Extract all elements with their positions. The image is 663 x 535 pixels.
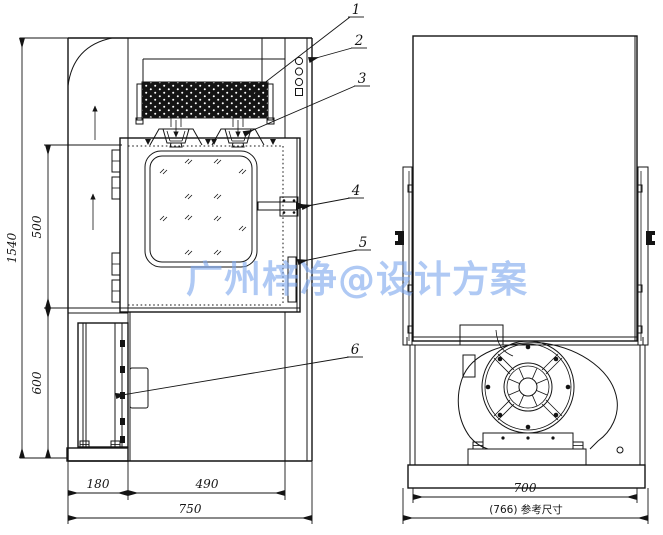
svg-text:6: 6: [351, 342, 360, 358]
airflow-duct-curve: [68, 38, 112, 86]
seal-mark: [205, 139, 211, 145]
svg-text:3: 3: [358, 71, 367, 87]
dim-label-1540: 1540: [5, 232, 19, 263]
seal-mark: [211, 139, 217, 145]
machine-compartment: [408, 325, 645, 488]
cabinet-handle[interactable]: [130, 368, 148, 408]
dim-width-row: 180 490 750: [68, 461, 312, 524]
hepa-filter: [136, 38, 285, 124]
dim-label-500: 500: [30, 215, 44, 238]
svg-text:4: 4: [351, 183, 361, 199]
dim-label-750: 750: [179, 502, 202, 516]
control-panel: [285, 38, 303, 138]
front-view: [67, 38, 312, 461]
dim-label-490: 490: [195, 477, 219, 491]
fan-flange-bolts: [486, 345, 571, 430]
callout-2: 2: [309, 33, 367, 60]
dim-label-180: 180: [87, 477, 110, 491]
cabinet-hinge-mark: [120, 418, 125, 425]
glass-marks: [160, 159, 246, 255]
technical-drawing-canvas: 1540 500 600 180 490 750: [0, 0, 663, 535]
cabinet-hinge-mark: [120, 340, 125, 347]
door-rail-left: [395, 167, 412, 345]
dim-label-700: 700: [514, 481, 537, 495]
fan-hub-spokes: [509, 368, 548, 407]
filter-bracket-right: [268, 84, 273, 120]
side-latch-knob-left[interactable]: [395, 231, 404, 245]
control-button-3[interactable]: [295, 78, 302, 85]
svg-text:1: 1: [352, 2, 361, 18]
callouts: 1 2 3 4 5 6: [116, 2, 371, 396]
control-button-2[interactable]: [295, 68, 302, 75]
pedestal: [468, 449, 586, 465]
door-rail-right: [638, 167, 655, 345]
dim-label-766-ref: (766) 参考尺寸: [489, 503, 563, 516]
lower-section: [67, 312, 300, 461]
dim-label-600: 600: [30, 371, 44, 394]
cad-drawing: 1540 500 600 180 490 750: [0, 0, 663, 535]
fan-flange: [482, 341, 574, 433]
callout-6: 6: [116, 342, 363, 396]
control-switch[interactable]: [296, 89, 303, 96]
plinth: [67, 448, 128, 461]
diffuser-funnel-left: [150, 118, 202, 147]
seal-mark: [270, 139, 276, 145]
svg-text:2: 2: [354, 33, 364, 49]
fan-hub: [504, 363, 552, 411]
fan-mount: [468, 433, 586, 465]
cabinet-hinge-mark: [120, 366, 125, 373]
dim-height-lower: 600: [30, 308, 48, 458]
lower-cabinet: [67, 323, 148, 461]
drain-hole: [617, 447, 623, 453]
airflow-arrows: [93, 106, 95, 230]
diffuser-funnels: [145, 118, 276, 147]
filter-media: [142, 82, 268, 118]
filter-bracket-left: [137, 84, 142, 120]
cabinet-hinge-mark: [120, 436, 125, 443]
watermark-text: 广州梓净@设计方案: [186, 258, 528, 301]
svg-text:5: 5: [359, 235, 368, 251]
side-latch-knob-right[interactable]: [646, 231, 655, 245]
blower-fan: [458, 330, 617, 449]
diffuser-funnel-right: [212, 118, 264, 147]
mount-plate: [483, 433, 573, 449]
dim-height-upper: 500: [30, 145, 128, 308]
door-hinges: [112, 150, 120, 302]
door-window: [145, 151, 257, 267]
